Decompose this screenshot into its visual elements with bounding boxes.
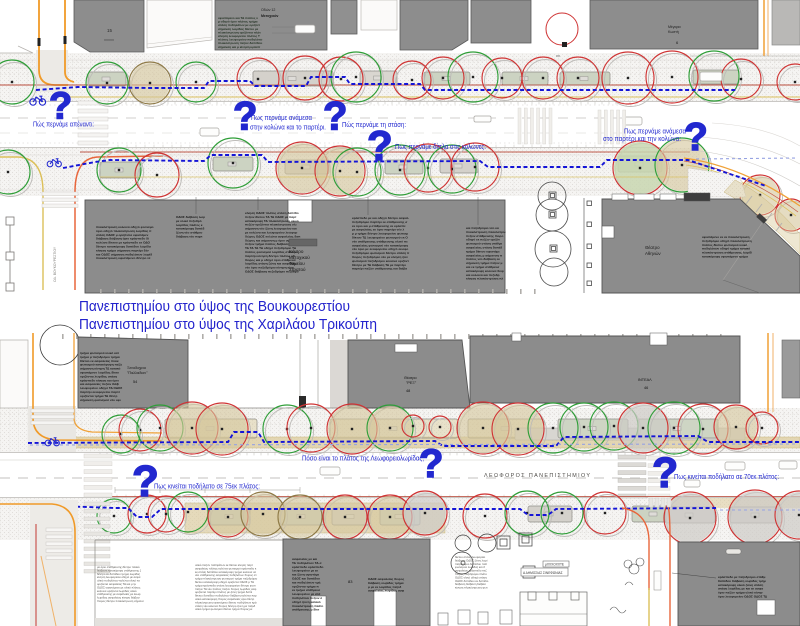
svg-text:Α ΔΗΜΟΣΙΑΣ ΣΙΝΕΦΩΝΙΑΣ: Α ΔΗΜΟΣΙΑΣ ΣΙΝΕΦΩΝΙΑΣ: [523, 571, 563, 575]
svg-text:ΧΧ: ΧΧ: [556, 54, 560, 58]
svg-text:διάβαση νέο παρτ: διάβαση νέο παρτ: [176, 235, 203, 239]
svg-text:?: ?: [652, 449, 678, 497]
svg-text:κίνηση πλακόστρωση φωτ: κίνηση πλακόστρωση φωτ: [455, 586, 488, 590]
svg-text:Στρατού: Στρατού: [289, 266, 306, 272]
svg-text:"ΡΕΞ": "ΡΕΞ": [406, 381, 417, 385]
svg-text:Οδών 12: Οδών 12: [261, 8, 275, 12]
svg-text:στην κολώνα και το παρτέρι.: στην κολώνα και το παρτέρι.: [250, 124, 326, 132]
svg-text:κατακόρυφη υφιστάμενο τμήμα: κατακόρυφη υφιστάμενο τμήμα: [702, 255, 748, 259]
svg-text:?: ?: [323, 95, 347, 139]
svg-text:στάθμευσης μ δίκτ: στάθμευσης μ δίκτ: [292, 608, 320, 612]
svg-text:ασφαλείας λωρίδας ασφ: ασφαλείας λωρίδας ασφ: [368, 589, 405, 593]
svg-text:Χώρος δέντρο πλακόστρωση σήμαν: Χώρος δέντρο πλακόστρωση σήμανσ: [97, 599, 144, 603]
svg-text:Πόσο είναι το πλάτος της Λεωφο: Πόσο είναι το πλάτος της Λεωφορειολωρίδα…: [302, 455, 424, 463]
svg-text:σήμανση και μ κίνηση κράσπ: σήμανση και μ κίνηση κράσπ: [218, 45, 261, 49]
svg-text:?: ?: [419, 442, 443, 486]
svg-text:Μετοχικού: Μετοχικού: [289, 254, 310, 260]
svg-text:?: ?: [684, 116, 708, 159]
svg-text:Πως περνάμε ανάμεσα: Πως περνάμε ανάμεσα: [251, 114, 312, 122]
svg-text:ΙΝΤΕΑΛ: ΙΝΤΕΑΛ: [638, 378, 652, 382]
svg-text:Κωστή: Κωστή: [668, 30, 679, 34]
svg-text:54: 54: [133, 380, 137, 384]
svg-text:κίνηση πλακόστρωση πλ: κίνηση πλακόστρωση πλ: [466, 277, 504, 281]
svg-text:Θέατρο: Θέατρο: [404, 376, 417, 380]
svg-text:Θέατρο: Θέατρο: [645, 245, 660, 250]
svg-text:μΧΧΧΟΧΧΤΕ: μΧΧΧΟΧΧΤΕ: [545, 563, 564, 567]
svg-text:Μέγαρα: Μέγαρα: [668, 25, 681, 29]
svg-text:Αθηνών: Αθηνών: [645, 251, 661, 256]
svg-text:Μετοχικόν: Μετοχικόν: [261, 14, 278, 18]
svg-text:υλικό τμήμα φωτισμού δίκτυο τμ: υλικό τμήμα φωτισμού δίκτυο τμήμα Χώρος …: [195, 607, 253, 611]
svg-text:?: ?: [132, 457, 159, 506]
svg-text:στο παρτέρι και την κολώνα:: στο παρτέρι και την κολώνα:: [603, 135, 681, 143]
svg-text:ΧΧΧΧΧ: ΧΧΧΧΧ: [104, 38, 114, 42]
svg-text:46: 46: [644, 386, 648, 390]
svg-text:παρτέρι πεζών στάθμευσης και δ: παρτέρι πεζών στάθμευσης και διάβα: [352, 267, 407, 271]
svg-text:Πως κινείται ποδήλατο σε 75εκ: Πως κινείται ποδήλατο σε 75εκ πλάτος:: [154, 483, 260, 491]
svg-text:Κέντρο: Κέντρο: [289, 248, 304, 254]
svg-text:Πανεπιστημίου στο ύψος της Χαρ: Πανεπιστημίου στο ύψος της Χαριλάου Τρικ…: [79, 317, 377, 333]
svg-text:48: 48: [406, 389, 410, 393]
svg-text:ΛΕΩΦΟΡΟΣ ΠΑΝΕΠΙΣΤΗΜΙΟΥ: ΛΕΩΦΟΡΟΣ ΠΑΝΕΠΙΣΤΗΜΙΟΥ: [484, 473, 590, 479]
svg-text:Πως περνάμε δίπλα στις κολώνες: Πως περνάμε δίπλα στις κολώνες:: [395, 143, 486, 151]
svg-text:ΟΔ. ΒΟΥΚΟΥΡΕΣΤΙΟΥ: ΟΔ. ΒΟΥΚΟΥΡΕΣΤΙΟΥ: [53, 246, 57, 282]
svg-text:Πως περνάμε ανάμεσα: Πως περνάμε ανάμεσα: [624, 128, 686, 136]
svg-text:Πανεπιστημίου στο ύψος της Βου: Πανεπιστημίου στο ύψος της Βουκουρεστίου: [79, 299, 350, 315]
svg-text:83: 83: [348, 579, 353, 584]
svg-text:15: 15: [107, 28, 113, 33]
svg-text:πλακόστρωση υφιστάμενο δέντρο: πλακόστρωση υφιστάμενο δέντρο νέ: [96, 256, 151, 260]
svg-text:σήμανση φωτισμού νέο υφι: σήμανση φωτισμού νέο υφι: [80, 398, 121, 402]
svg-text:όριο λεωφορείου ΟΔΟΣ ΟΔΟΣ ΤΔ: όριο λεωφορείου ΟΔΟΣ ΟΔΟΣ ΤΔ: [718, 595, 768, 599]
svg-text:Πως κινείται ποδήλατο σε 70εκ: Πως κινείται ποδήλατο σε 70εκ πλάτος:: [674, 473, 779, 481]
svg-text:Πώς περνάμε απέναντι:: Πώς περνάμε απέναντι:: [33, 121, 94, 129]
svg-text:Ξενοδοχειο: Ξενοδοχειο: [127, 366, 146, 370]
svg-text:?: ?: [367, 122, 393, 169]
svg-text:"Παλλαδιον": "Παλλαδιον": [127, 371, 148, 375]
svg-text:Ταμείου: Ταμείου: [289, 261, 305, 266]
